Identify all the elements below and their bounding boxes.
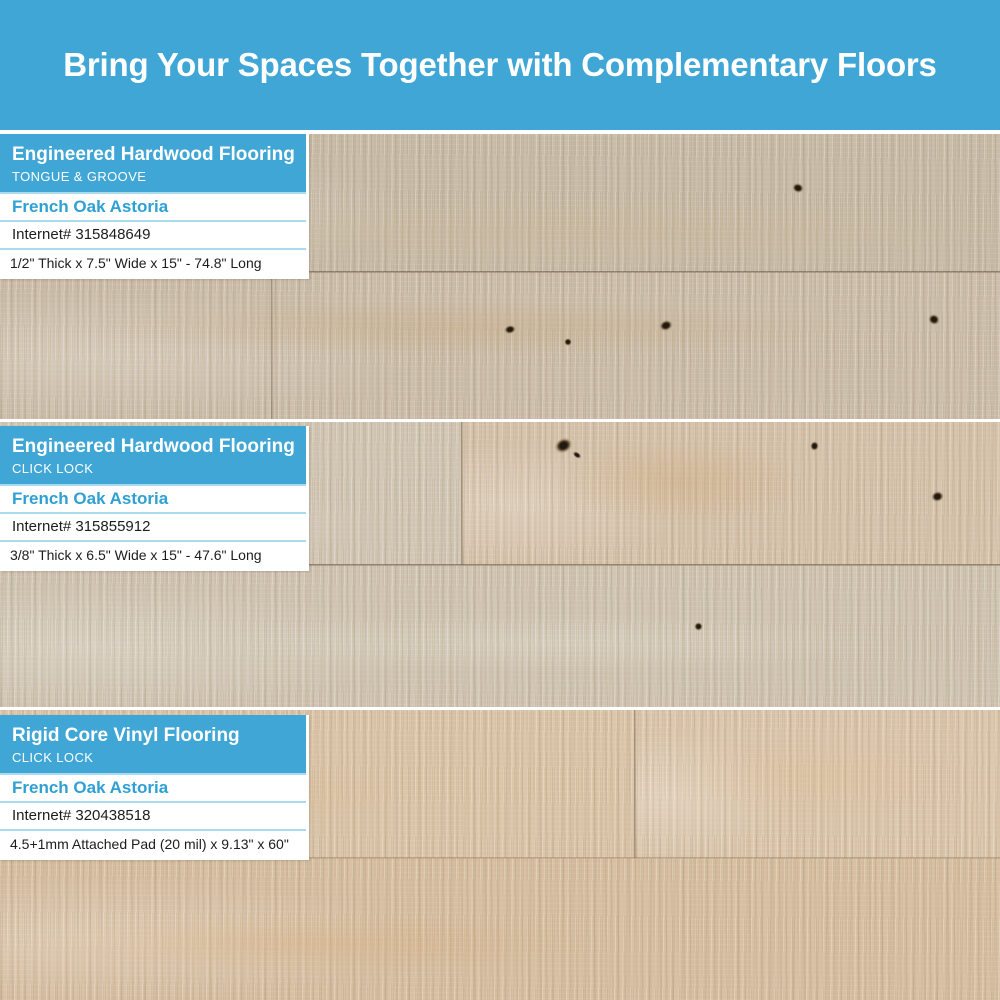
product-category-header: Rigid Core Vinyl Flooring CLICK LOCK xyxy=(0,715,306,773)
install-type: CLICK LOCK xyxy=(12,750,294,765)
plank-seam xyxy=(461,422,463,565)
promo-graphic: Bring Your Spaces Together with Compleme… xyxy=(0,0,1000,1000)
wood-plank xyxy=(0,565,1000,707)
install-type: TONGUE & GROOVE xyxy=(12,169,294,184)
product-label-card: Rigid Core Vinyl Flooring CLICK LOCK Fre… xyxy=(0,715,309,860)
product-label-card: Engineered Hardwood Flooring CLICK LOCK … xyxy=(0,426,309,571)
internet-number: Internet# 320438518 xyxy=(0,801,306,829)
wood-plank xyxy=(635,710,1000,858)
product-category: Engineered Hardwood Flooring xyxy=(12,143,294,166)
wood-plank xyxy=(0,858,1000,1000)
banner-title: Bring Your Spaces Together with Compleme… xyxy=(63,46,936,84)
product-dimensions: 3/8" Thick x 6.5" Wide x 15" - 47.6" Lon… xyxy=(0,540,306,568)
section-engineered-click-lock: Engineered Hardwood Flooring CLICK LOCK … xyxy=(0,422,1000,710)
product-category: Engineered Hardwood Flooring xyxy=(12,435,294,458)
internet-number: Internet# 315848649 xyxy=(0,220,306,248)
install-type: CLICK LOCK xyxy=(12,461,294,476)
product-name: French Oak Astoria xyxy=(0,192,306,220)
wood-plank xyxy=(0,272,1000,419)
plank-seam xyxy=(271,272,273,419)
product-dimensions: 4.5+1mm Attached Pad (20 mil) x 9.13" x … xyxy=(0,829,306,857)
plank-seam xyxy=(634,710,636,858)
banner: Bring Your Spaces Together with Compleme… xyxy=(0,0,1000,134)
product-label-card: Engineered Hardwood Flooring TONGUE & GR… xyxy=(0,134,309,279)
product-category-header: Engineered Hardwood Flooring TONGUE & GR… xyxy=(0,134,306,192)
wood-plank xyxy=(462,422,1000,565)
product-category-header: Engineered Hardwood Flooring CLICK LOCK xyxy=(0,426,306,484)
product-dimensions: 1/2" Thick x 7.5" Wide x 15" - 74.8" Lon… xyxy=(0,248,306,276)
section-rigid-core-vinyl: Rigid Core Vinyl Flooring CLICK LOCK Fre… xyxy=(0,710,1000,1000)
product-category: Rigid Core Vinyl Flooring xyxy=(12,724,294,747)
product-name: French Oak Astoria xyxy=(0,773,306,801)
section-engineered-tongue-groove: Engineered Hardwood Flooring TONGUE & GR… xyxy=(0,134,1000,422)
product-name: French Oak Astoria xyxy=(0,484,306,512)
internet-number: Internet# 315855912 xyxy=(0,512,306,540)
